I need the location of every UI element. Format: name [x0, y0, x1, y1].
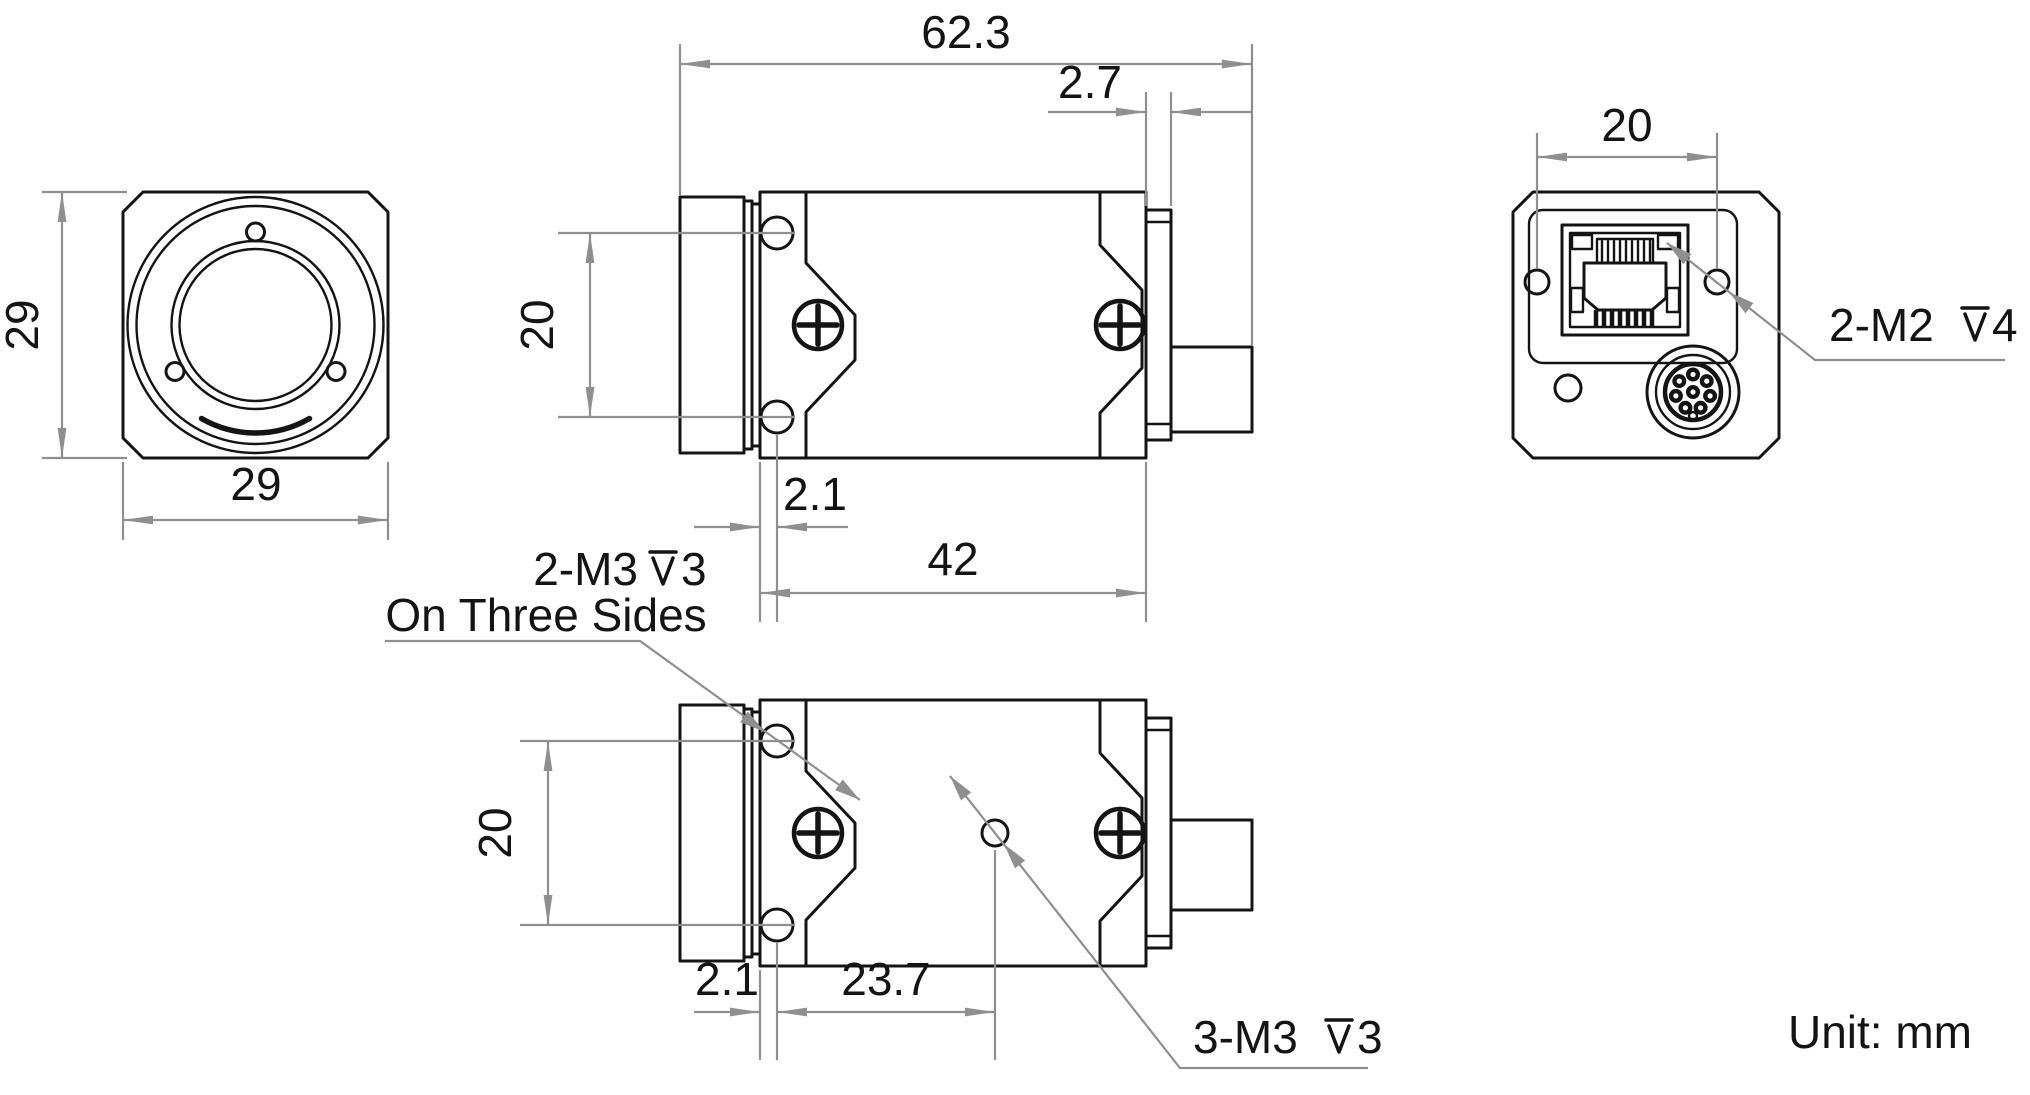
ethernet-teeth: [1596, 310, 1652, 326]
dimension-total-length: 62.3: [680, 6, 1252, 345]
dim-bottom-hole-offset: 2.1: [695, 953, 759, 1005]
dimension-bottom-hole-offset: 2.1: [694, 943, 777, 1060]
depth-symbol-icon: [650, 552, 676, 584]
leader-arrowhead: [1004, 844, 1025, 868]
led-indicator-hole: [1555, 375, 1581, 401]
lens-lock-arc: [202, 419, 310, 433]
dim-side-hole-spacing: 20: [511, 299, 563, 350]
dimension-rear-cap: 2.7: [1048, 56, 1252, 206]
leader-arrowhead: [950, 776, 971, 800]
bottom-screw-rear: [1096, 809, 1144, 857]
dim-rear-cap: 2.7: [1058, 56, 1122, 108]
leader-arrowhead: [1729, 292, 1753, 313]
setscrew-hole-top: [247, 223, 265, 241]
leader-arrowhead: [835, 780, 860, 801]
ethernet-clip-left: [1572, 235, 1592, 249]
side-lens-ring: [680, 197, 744, 453]
side-screw-rear: [1096, 301, 1144, 349]
lens-mount-ring-outer: [128, 197, 384, 453]
lens-thread-circle: [172, 241, 340, 409]
bottom-io-connector-block: [1171, 820, 1252, 910]
front-body-outline: [123, 192, 388, 458]
dim-bottom-hole-spacing: 20: [469, 807, 521, 858]
dim-front-height: 29: [0, 299, 48, 350]
dim-rear-screw-spacing: 20: [1601, 99, 1652, 151]
label-side-thread-holes: 2-M3 3 On Three Sides: [385, 543, 706, 641]
ethernet-latch: [1584, 263, 1666, 310]
label-rear-holes-depth: 4: [1992, 299, 2018, 351]
ethernet-slot-left: [1571, 288, 1583, 312]
dimension-bottom-hole-spacing: 20: [469, 741, 795, 925]
label-bottom-holes-prefix: 3-M3: [1193, 1011, 1298, 1063]
dim-front-width: 29: [230, 458, 281, 510]
label-bottom-holes-depth: 3: [1357, 1011, 1383, 1063]
dim-tripod-hole-offset: 23.7: [841, 953, 931, 1005]
ethernet-slot-right: [1667, 288, 1679, 312]
power-io-connector: [1647, 346, 1739, 438]
lens-opening-circle: [180, 249, 332, 401]
label-side-holes-depth: 3: [681, 543, 707, 595]
technical-drawing-page: 29 29: [0, 0, 2030, 1095]
dimension-front-height: 29: [0, 192, 127, 458]
bottom-lens-ring: [680, 705, 744, 961]
label-rear-thread-holes: 2-M2 4: [1829, 299, 2018, 351]
side-rear-cap: [1146, 210, 1171, 440]
depth-symbol-icon: [1326, 1020, 1352, 1052]
label-bottom-thread-holes: 3-M3 3: [1193, 1011, 1383, 1063]
ethernet-pin-comb: [1597, 239, 1653, 263]
setscrew-hole-left: [166, 363, 184, 381]
camera-dimension-drawing: 29 29: [0, 0, 2030, 1095]
dimension-front-width: 29: [123, 458, 388, 540]
side-view: 62.3 2.7 20 2.1 42: [511, 6, 1252, 622]
setscrew-hole-right: [327, 363, 345, 381]
label-side-holes-note: On Three Sides: [385, 589, 706, 641]
front-view: 29 29: [0, 192, 388, 540]
bottom-view: 20 2.1 23.7 2-M3 3 On Three Sides: [385, 543, 1383, 1068]
label-side-holes-prefix: 2-M3: [533, 543, 638, 595]
depth-symbol-icon: [1962, 308, 1988, 340]
bottom-screw-front: [794, 809, 842, 857]
rear-view: 20 2-M2 4: [1513, 99, 2018, 458]
dim-total-length: 62.3: [921, 6, 1011, 58]
bottom-rear-cap: [1146, 718, 1171, 948]
dim-body-length: 42: [927, 533, 978, 585]
ethernet-port: [1562, 225, 1688, 335]
leader-side-thread-holes: [385, 641, 860, 800]
side-screw-front: [794, 301, 842, 349]
dimension-tripod-hole-offset: 23.7: [777, 850, 995, 1060]
label-rear-holes-prefix: 2-M2: [1829, 299, 1934, 351]
side-io-connector-block: [1171, 347, 1252, 432]
dim-side-hole-offset: 2.1: [783, 468, 847, 520]
unit-note: Unit: mm: [1788, 1006, 1972, 1058]
lens-mount: [128, 197, 384, 453]
leader-bottom-thread-holes: [950, 776, 1368, 1068]
